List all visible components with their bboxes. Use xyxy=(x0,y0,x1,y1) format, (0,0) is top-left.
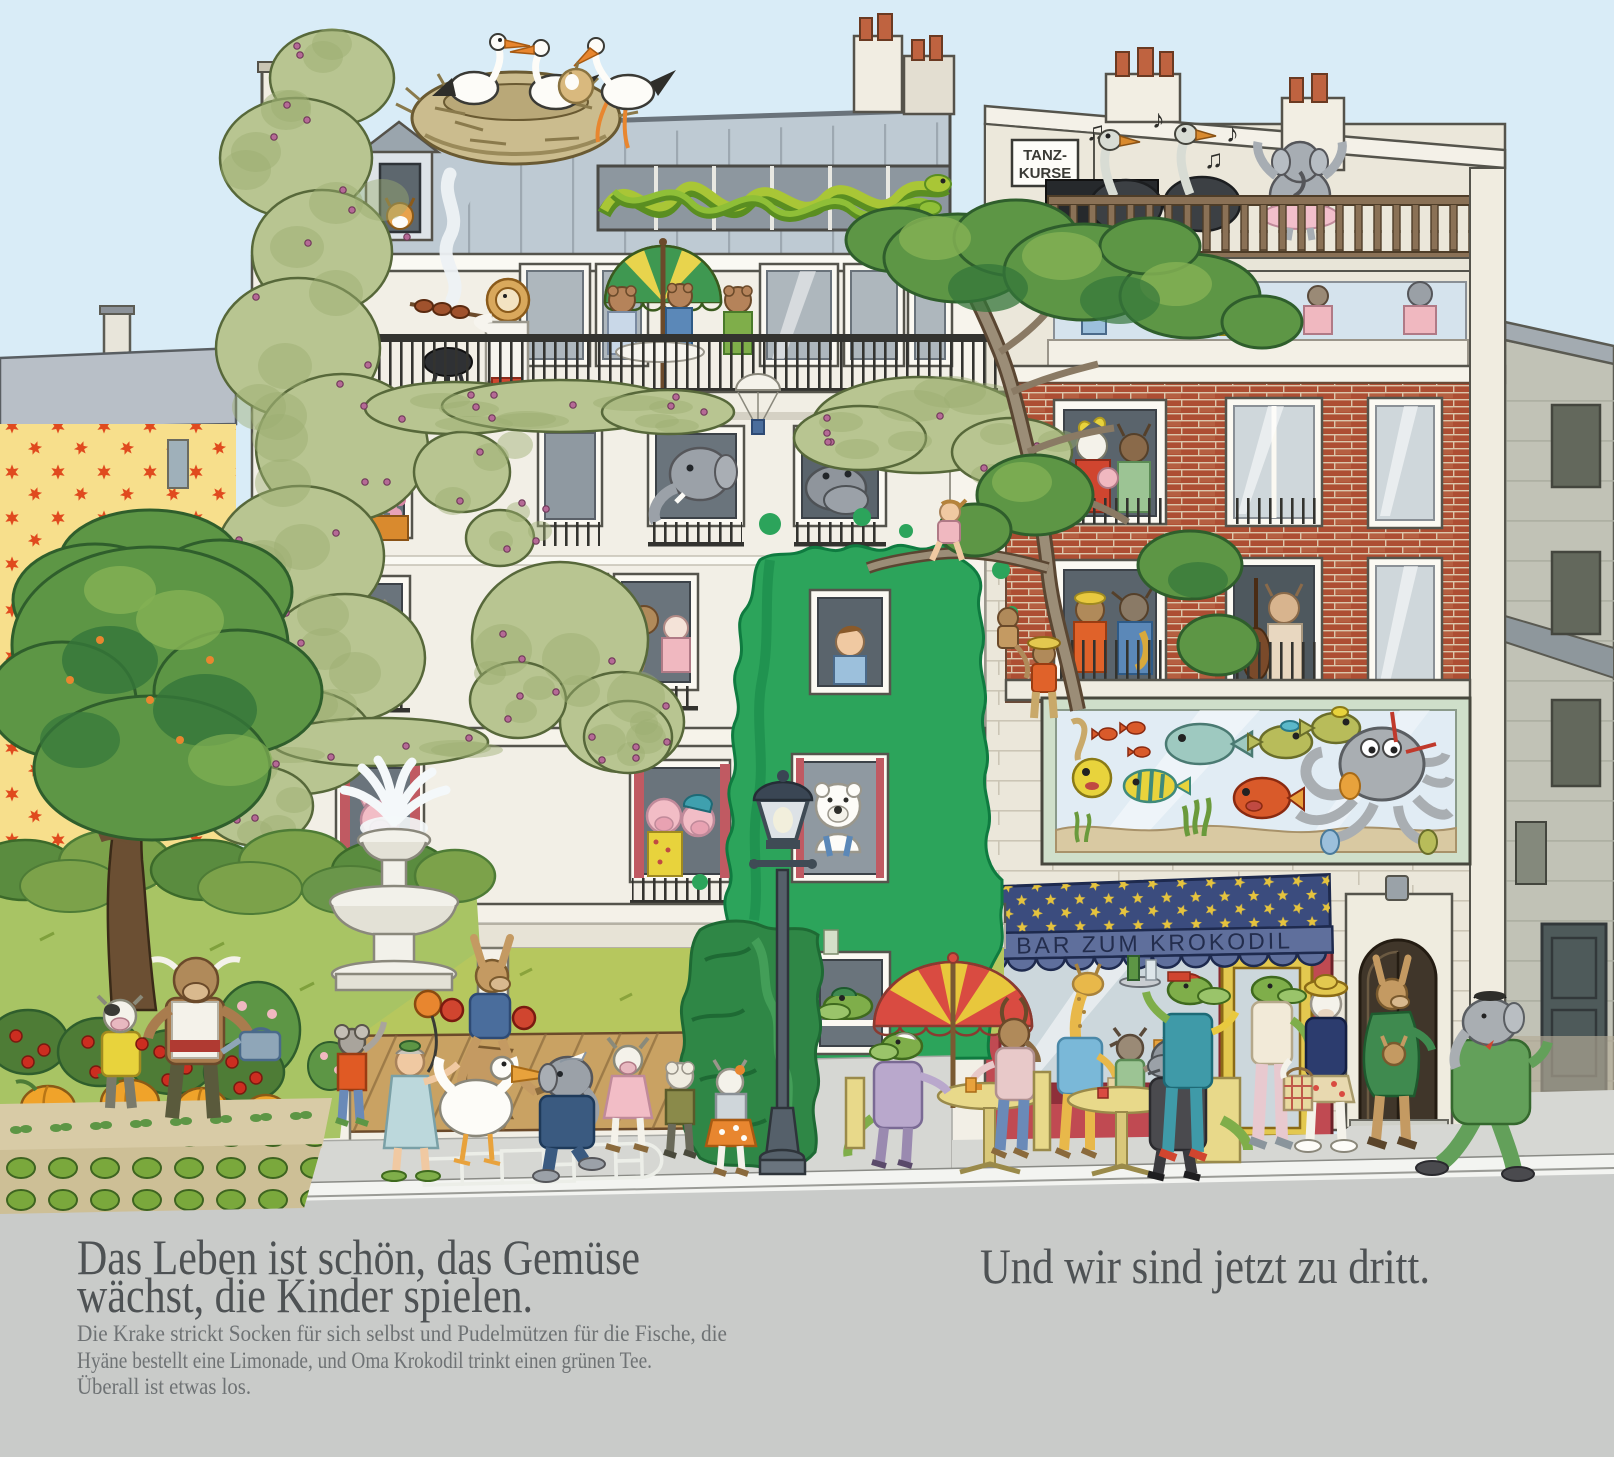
svg-text:♪: ♪ xyxy=(1152,104,1165,134)
svg-text:Hyäne bestellt eine Limonade,: Hyäne bestellt eine Limonade, und Oma Kr… xyxy=(77,1348,652,1373)
svg-text:BAR ZUM KROKODIL: BAR ZUM KROKODIL xyxy=(1016,927,1293,958)
svg-text:Die Krake strickt Socken für s: Die Krake strickt Socken für sich selbst… xyxy=(77,1321,727,1346)
svg-text:♪: ♪ xyxy=(1226,118,1239,148)
svg-text:TANZ-: TANZ- xyxy=(1023,147,1067,164)
svg-text:wächst, die Kinder spielen.: wächst, die Kinder spielen. xyxy=(77,1267,533,1323)
svg-text:Überall ist etwas los.: Überall ist etwas los. xyxy=(77,1374,251,1399)
svg-text:Und wir sind jetzt zu dritt.: Und wir sind jetzt zu dritt. xyxy=(980,1238,1430,1294)
svg-text:♫: ♫ xyxy=(1204,144,1224,174)
